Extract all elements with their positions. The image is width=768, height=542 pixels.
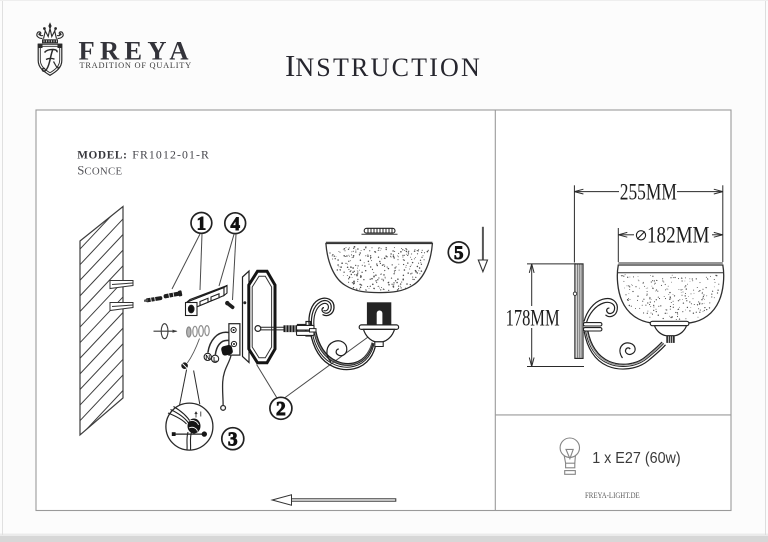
- svg-text:FREYA-LIGHT.DE: FREYA-LIGHT.DE: [585, 490, 640, 500]
- svg-text:N: N: [205, 354, 210, 361]
- svg-text:4: 4: [230, 214, 240, 235]
- svg-text:INSTRUCTION: INSTRUCTION: [285, 48, 482, 83]
- svg-text:1 x E27 (60w): 1 x E27 (60w): [592, 450, 681, 467]
- svg-text:2: 2: [276, 399, 286, 420]
- svg-text:FR1012-01-R: FR1012-01-R: [132, 148, 210, 162]
- svg-text:L: L: [213, 356, 217, 363]
- svg-text:1: 1: [197, 214, 207, 235]
- svg-text:255MM: 255MM: [620, 180, 677, 205]
- svg-text:3: 3: [228, 430, 238, 451]
- svg-text:182MM: 182MM: [647, 223, 710, 248]
- svg-text:5: 5: [454, 243, 464, 264]
- svg-text:MODEL:: MODEL:: [77, 150, 127, 162]
- svg-text:TRADITION OF QUALITY: TRADITION OF QUALITY: [80, 61, 193, 70]
- svg-text:178MM: 178MM: [506, 306, 560, 331]
- svg-text:SCONCE: SCONCE: [77, 164, 122, 178]
